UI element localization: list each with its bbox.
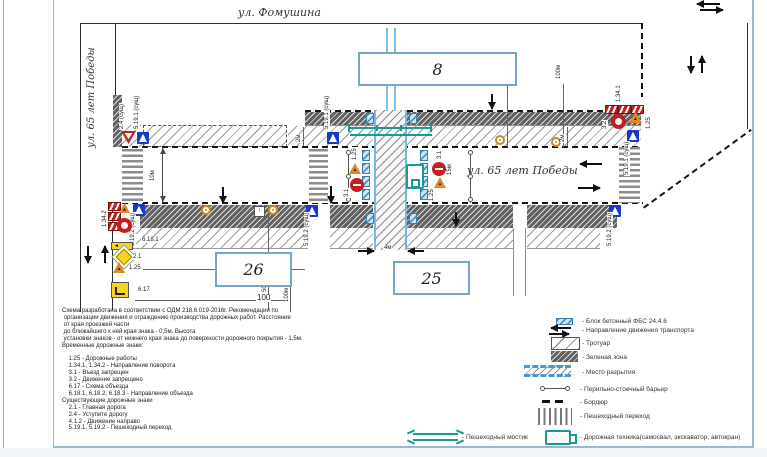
dim-label: 15м bbox=[447, 163, 453, 176]
legend-label: - Пешеходный переход bbox=[580, 413, 650, 420]
excavator-icon bbox=[406, 164, 424, 189]
pedestrian-crossing-center bbox=[309, 149, 328, 203]
sign-yield-inner bbox=[124, 133, 132, 140]
road-edge-west-street-east bbox=[115, 23, 116, 97]
sign-detour-mini bbox=[254, 206, 265, 217]
traffic-arrow-down bbox=[87, 246, 89, 263]
legend-label: - Место разрытия bbox=[582, 369, 635, 376]
sign-label: 1.34.2 bbox=[102, 209, 108, 228]
legend-label: - Блок бетонный ФБС 24.4.6 bbox=[582, 318, 667, 325]
traffic-arrow-left bbox=[697, 3, 720, 5]
street-label-fomushina: ул. Фомушина bbox=[238, 6, 321, 19]
dim-arrow-4m bbox=[358, 250, 374, 252]
legend-label: - Зеленая зона bbox=[582, 354, 627, 361]
sign-label: 5.19.2 (сущ) bbox=[304, 212, 310, 247]
sign-label: 5.19.1 (сущ) bbox=[134, 95, 140, 130]
sign-chevron-1-34-1 bbox=[631, 105, 644, 114]
traffic-arrow-right bbox=[700, 9, 723, 11]
sign-label: 5.19.2 (сущ) bbox=[607, 212, 613, 247]
driveway-line bbox=[525, 228, 526, 296]
fbs-block bbox=[366, 213, 374, 224]
building-26-number: 26 bbox=[243, 260, 263, 279]
building-26-box: 26 bbox=[215, 252, 292, 287]
dim-label: 4м bbox=[383, 245, 392, 251]
frame-right bbox=[752, 0, 754, 447]
sign-label: 1.34.1 bbox=[616, 84, 622, 103]
dim-label: 100м bbox=[284, 287, 290, 303]
barrier-post bbox=[468, 150, 473, 155]
dim-label: 100м bbox=[556, 64, 562, 80]
curb-line-green-top bbox=[305, 110, 373, 112]
legend-machinery-icon bbox=[545, 430, 571, 445]
road-edge-east-street bbox=[747, 23, 748, 129]
crossing-pictogram bbox=[329, 134, 337, 142]
excavation-trench bbox=[374, 110, 407, 250]
sign-crossing-5-19-1 bbox=[137, 132, 149, 144]
legend-label: - Пешеходный мостик bbox=[462, 434, 528, 441]
sign-chevron-1-34-1 bbox=[605, 105, 618, 114]
building-8-number: 8 bbox=[432, 60, 442, 79]
dim-arrow-4m bbox=[408, 250, 424, 252]
legend-label: - Направление движения транспорта bbox=[582, 327, 694, 334]
sign-label: 1.25 bbox=[352, 147, 358, 161]
crossing-pictogram bbox=[135, 206, 143, 214]
legend-bridge-icon bbox=[413, 433, 458, 435]
legend-direction-arrow bbox=[551, 327, 571, 329]
crossing-pictogram bbox=[139, 134, 147, 142]
manhole-icon bbox=[201, 205, 211, 215]
barrier-post bbox=[346, 150, 351, 155]
sidewalk-edge bbox=[305, 125, 641, 126]
legend-barrier-post bbox=[565, 386, 570, 391]
legend-swatch-curb bbox=[542, 400, 568, 403]
barrier-post bbox=[468, 174, 473, 179]
bridge-tick bbox=[400, 125, 402, 131]
legend-swatch-excavation bbox=[524, 365, 571, 377]
legend-swatch-fbs bbox=[556, 318, 573, 325]
sidewalk bbox=[143, 125, 287, 147]
traffic-arrow-up bbox=[104, 246, 106, 263]
legend-bridge-icon bbox=[413, 439, 458, 441]
dim-tick bbox=[567, 127, 568, 146]
building-25-box: 25 bbox=[393, 261, 470, 295]
pedestrian-bridge bbox=[350, 127, 432, 129]
legend-barrier-post bbox=[540, 386, 545, 391]
traffic-scheme-drawing: ул. Фомушина ул. 65 лет Победы ул. 65 ле… bbox=[0, 0, 767, 457]
page-margin-strip bbox=[0, 448, 767, 457]
sign-no-entry-3-1 bbox=[432, 162, 446, 176]
sidewalk bbox=[407, 228, 513, 249]
dim-label: 2м bbox=[296, 134, 302, 143]
traffic-arrow-left bbox=[580, 163, 602, 165]
sign-label: 2.4 (сущ) bbox=[119, 103, 125, 130]
traffic-arrow-up bbox=[701, 56, 703, 73]
bridge-tick bbox=[430, 124, 432, 132]
fbs-block bbox=[362, 189, 370, 200]
sign-label: 3.2 bbox=[602, 120, 608, 130]
sign-label: 6.18.1 bbox=[141, 237, 160, 243]
dim-label: 10м bbox=[150, 169, 156, 182]
fbs-block bbox=[409, 213, 417, 224]
dim-line-50m-top bbox=[507, 82, 508, 147]
notes-text: Схема разработана в соответствии с ОДМ 2… bbox=[62, 308, 422, 432]
pointer-arrow bbox=[330, 186, 332, 203]
sign-label: 2.1 bbox=[132, 254, 142, 260]
bridge-tick bbox=[376, 125, 378, 131]
fbs-block bbox=[420, 189, 428, 200]
legend-machinery-cab bbox=[569, 434, 577, 444]
sign-detour-scheme-6-17 bbox=[111, 282, 129, 298]
legend-swatch-green bbox=[551, 351, 578, 362]
sign-label: 1.25 bbox=[646, 116, 652, 130]
sign-label: 1.25 bbox=[128, 265, 142, 271]
sign-no-traffic-3-2 bbox=[611, 114, 626, 129]
sign-roadworks-1-25 bbox=[349, 163, 361, 174]
building-8-box: 8 bbox=[358, 52, 517, 86]
page-edge-line bbox=[3, 0, 4, 457]
legend-swatch-sidewalk bbox=[551, 337, 580, 350]
sign-chevron-1-34-2 bbox=[108, 202, 121, 211]
manhole-icon bbox=[268, 205, 278, 215]
legend-direction-arrow bbox=[549, 333, 569, 335]
traffic-arrow-down bbox=[690, 56, 692, 73]
barrier-post bbox=[468, 197, 473, 202]
dim-label: 100 bbox=[256, 294, 271, 302]
green-zone-strip bbox=[527, 205, 617, 228]
fbs-block bbox=[362, 150, 370, 161]
sidewalk bbox=[527, 228, 600, 249]
sign-no-entry-3-1 bbox=[350, 178, 364, 192]
legend-label: - Дорожная техника(самосвал, экскаватор,… bbox=[580, 434, 740, 441]
sign-chevron-1-34-1 bbox=[618, 105, 631, 114]
sign-label: 5.19.1 (сущ) bbox=[324, 95, 330, 130]
pointer-arrow bbox=[455, 212, 457, 226]
sign-label: 3.1 bbox=[437, 150, 443, 160]
sign-label: 6.17 bbox=[137, 287, 151, 293]
work-boundary-diagonal bbox=[643, 129, 752, 209]
sign-label: 3.1 bbox=[344, 188, 350, 198]
fbs-block bbox=[362, 163, 370, 174]
fbs-block bbox=[366, 113, 374, 124]
legend-swatch-crossing bbox=[538, 408, 572, 425]
sign-no-traffic-3-2 bbox=[117, 218, 132, 233]
building-25-number: 25 bbox=[421, 269, 441, 288]
dim-label: 2м bbox=[560, 134, 566, 143]
crossing-pictogram bbox=[629, 132, 637, 140]
pointer-arrow bbox=[222, 187, 224, 203]
pedestrian-bridge bbox=[350, 134, 432, 136]
driveway-line bbox=[513, 228, 514, 296]
road-edge-fomushina bbox=[80, 23, 641, 24]
street-label-pobedy-left: ул. 65 лет Победы bbox=[86, 47, 97, 148]
sign-main-road-2-1 bbox=[116, 249, 133, 266]
pedestrian-crossing-west bbox=[122, 149, 143, 203]
sidewalk bbox=[330, 228, 373, 249]
sign-crossing-5-19-1 bbox=[327, 132, 339, 144]
road-edge-west-street bbox=[80, 23, 81, 312]
sign-label: 5.19.1 (сущ) bbox=[624, 141, 630, 176]
excavator-cab bbox=[411, 179, 420, 188]
dim-tick bbox=[303, 127, 304, 146]
manhole-icon bbox=[495, 135, 505, 145]
fbs-block bbox=[409, 113, 417, 124]
green-zone-strip bbox=[140, 205, 308, 228]
traffic-arrow-right bbox=[578, 187, 600, 189]
fbs-block bbox=[420, 150, 428, 161]
frame-left bbox=[53, 0, 54, 447]
barrier-post bbox=[346, 174, 351, 179]
green-zone-strip bbox=[305, 112, 373, 126]
legend-barrier-line bbox=[543, 388, 567, 389]
legend-label: - Перильно-стоечный барьер bbox=[580, 386, 668, 393]
street-label-pobedy-mid: ул. 65 лет Победы bbox=[467, 164, 578, 177]
dim-road-width bbox=[162, 148, 163, 202]
legend-label: - Бордюр bbox=[580, 399, 608, 406]
sign-label: 1.25 bbox=[429, 188, 435, 202]
bridge-tick bbox=[348, 124, 350, 132]
legend-label: - Тротуар bbox=[582, 340, 610, 347]
work-boundary-east bbox=[641, 23, 643, 97]
sign-roadworks-1-25 bbox=[434, 177, 446, 188]
pointer-arrow bbox=[491, 94, 493, 109]
green-zone-strip bbox=[407, 205, 513, 228]
